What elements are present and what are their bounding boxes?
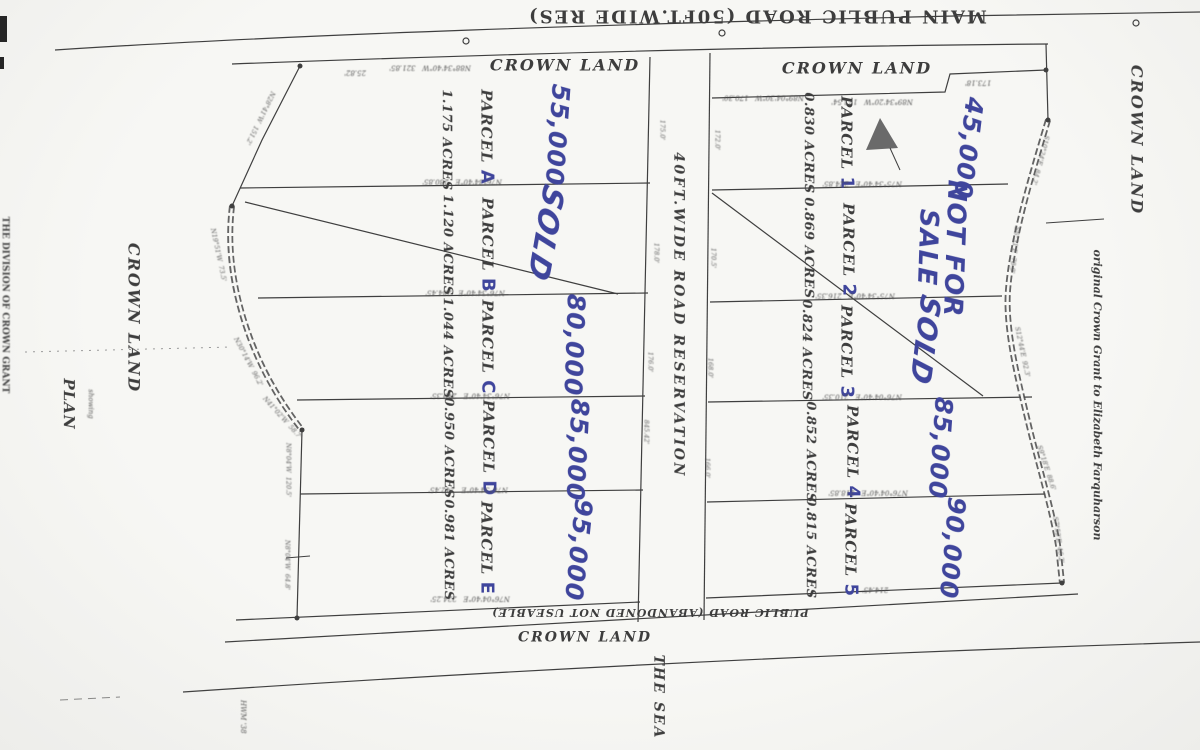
dim-ab: N76°34'40"E 280.85' — [422, 177, 502, 184]
parcel-b-label: PARCEL B — [478, 197, 497, 292]
dim-5-bottom: 214.45' — [862, 585, 888, 592]
parcel-4-price-note: 85,000 — [923, 396, 956, 500]
crown-land-right: CROWN LAND — [1128, 65, 1145, 215]
main-road-label: MAIN PUBLIC ROAD (50FT.WIDE RES) — [527, 6, 987, 25]
road-right-edge — [704, 53, 710, 620]
parcel-2-label: PARCEL 2 — [839, 203, 858, 297]
road-dim-r1: 172.0' — [714, 130, 721, 150]
parcel-c-label: PARCEL C — [478, 300, 497, 395]
dim-bc: N76°34'40"E 284.45' — [425, 288, 505, 295]
plan-subtitle: showing — [86, 389, 93, 419]
edge-dim-2: N8°04'W 120.5' — [285, 443, 292, 497]
road-left-edge — [638, 57, 650, 622]
parcel-e-acres: 0.981 ACRES — [441, 499, 455, 600]
road-dim-l3: 176.0' — [647, 352, 654, 372]
scan-artifact — [0, 57, 4, 69]
abandoned-road-label: PUBLIC ROAD (ABANDONED NOT USEABLE) — [491, 606, 809, 618]
road-dim-r2: 170.5' — [710, 248, 717, 268]
original-grant-note: original Crown Grant to Elizabeth Farquh… — [1091, 250, 1103, 541]
parcel-1-acres: 0.830 ACRES — [801, 92, 815, 193]
scan-artifact — [0, 16, 7, 42]
parcel-d-price-note: 85,000 — [561, 398, 593, 502]
parcel-4-acres: 0.852 ACRES — [803, 401, 817, 502]
top-dim-1: N88°34'40"W 321.85' — [389, 63, 471, 70]
parcel-c-acres: 1.044 ACRES — [440, 297, 454, 398]
parcel-4-label: PARCEL 4 — [843, 405, 862, 499]
parcel-1-label: PARCEL 1 — [837, 96, 856, 190]
parcel-3-acres: 0.824 ACRES — [799, 299, 813, 400]
top-dim-2: 25.82' — [344, 68, 366, 75]
top-dim-4: N89°34'20"W 173.54' — [831, 97, 913, 104]
left-margin-note: THE DIVISION OF CROWN GRANT — [0, 217, 9, 394]
parcel-a-label: PARCEL A — [477, 89, 496, 184]
dim-de: N76°34'40"E 242.45' — [428, 485, 508, 492]
parcel-e-designator: E — [476, 582, 497, 595]
hwm-label: HWM '38 — [239, 700, 246, 734]
dim-34: N76°04'40"E 210.35' — [822, 392, 902, 399]
parcel-3-label: PARCEL 3 — [837, 305, 856, 399]
crown-land-top-left: CROWN LAND — [490, 58, 640, 75]
parcel-c-price-note: 80,000 — [559, 293, 589, 396]
parcel-5-acres: 0.815 ACRES — [803, 497, 817, 598]
survey-flag-mark — [866, 118, 898, 150]
parcel-5-designator: 5 — [840, 583, 861, 597]
crown-land-top-right: CROWN LAND — [782, 61, 932, 78]
left-boundary-lower — [297, 430, 302, 618]
road-dim-l2: 178.0' — [653, 243, 660, 263]
the-sea-label: THE SEA — [651, 655, 666, 740]
top-dim-5: 173.18' — [965, 78, 991, 85]
parcel-d-label: PARCEL D — [479, 400, 498, 496]
parcel-a-acres: 1.175 ACRES — [439, 89, 453, 190]
parcel-2-acres: 0.869 ACRES — [801, 197, 815, 298]
top-dim-3: N89°04'30"W 170.30' — [722, 93, 804, 100]
dim-e-bottom: N76°04'40"E 224.25' — [430, 594, 510, 601]
crown-land-left: CROWN LAND — [125, 243, 142, 393]
dim-cd: N76°34'40"E 249.35' — [430, 391, 510, 398]
crown-land-bottom: CROWN LAND — [518, 631, 652, 646]
dim-23: N75°34'40"E 216.35' — [815, 291, 895, 298]
road-dim-r3: 168.0' — [707, 358, 714, 378]
chain-boundary-right — [1008, 120, 1062, 583]
left-boundary-upper — [232, 66, 300, 206]
road-reservation-label: 40FT.WIDE ROAD RESERVATION — [671, 152, 686, 478]
parcel-d-acres: 0.950 ACRES — [441, 397, 455, 498]
survey-plan-scan: MAIN PUBLIC ROAD (50FT.WIDE RES) CROWN L… — [0, 0, 1200, 750]
dim-12: N75°34'40"E 224.85' — [822, 179, 902, 186]
road-dim-l1: 175.0' — [659, 120, 666, 140]
road-dim-r4: 166.0' — [704, 458, 711, 478]
parcel-b-acres: 1.120 ACRES — [440, 194, 454, 295]
edge-dim-3: N8°04'W 64.8' — [284, 540, 291, 590]
parcel-a-price-note: 55,000 — [540, 83, 573, 187]
parcel-e-label: PARCEL E — [477, 501, 496, 595]
shoreline — [183, 642, 1200, 692]
plan-title: PLAN — [60, 378, 76, 429]
parcel-5-label: PARCEL 5 — [841, 503, 860, 597]
dim-45: N76°04'40"E 218.85' — [828, 488, 908, 495]
road-dim-l4: 845.42' — [643, 420, 650, 445]
